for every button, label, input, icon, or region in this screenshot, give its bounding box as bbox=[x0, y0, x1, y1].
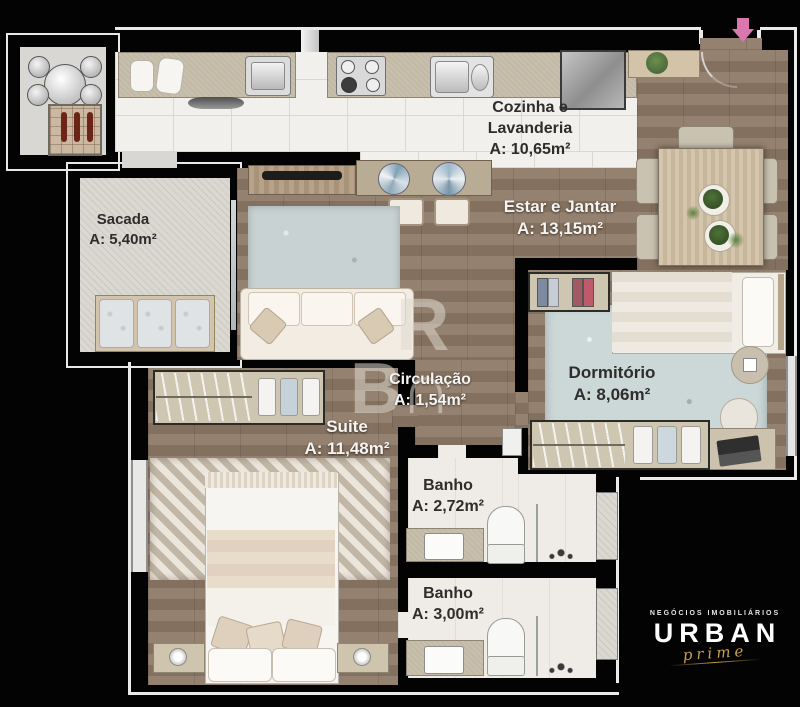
banho2-toilet-tank bbox=[487, 656, 525, 676]
room-name: Sacada bbox=[62, 210, 184, 230]
folded-clothes bbox=[280, 378, 298, 416]
laundry-tank-basin-small bbox=[471, 64, 489, 91]
banho1-toilet-tank bbox=[487, 544, 525, 564]
room-name: Lavanderia bbox=[450, 119, 610, 140]
banho1-vent-window bbox=[596, 492, 618, 560]
room-area: A: 1,54m² bbox=[350, 391, 510, 412]
wardrobe-clothes bbox=[583, 278, 594, 307]
label-banho1: Banho A: 2,72m² bbox=[398, 476, 498, 518]
nightstand-lamp bbox=[353, 648, 371, 666]
bed-pillow-large bbox=[208, 648, 272, 682]
living-rug bbox=[248, 206, 400, 296]
room-area: A: 2,72m² bbox=[398, 497, 498, 518]
label-circulacao: Circulação A: 1,54m² bbox=[350, 370, 510, 412]
outline-top-left bbox=[115, 27, 701, 30]
folded-clothes bbox=[302, 378, 320, 416]
banho1-shower-fixture bbox=[548, 548, 574, 560]
ottoman bbox=[434, 198, 470, 226]
side-lamp bbox=[743, 358, 757, 372]
table-plant bbox=[703, 189, 723, 209]
suite-bed-blanket bbox=[207, 530, 335, 588]
label-suite: Suite A: 11,48m² bbox=[286, 416, 408, 460]
outline-dorm-bottom bbox=[640, 477, 797, 480]
banho2-shower-fixture bbox=[548, 662, 574, 674]
room-name: Banho bbox=[398, 584, 498, 605]
banho2-shower-glass bbox=[536, 616, 538, 676]
table-sprig bbox=[728, 232, 744, 248]
stool bbox=[80, 56, 102, 78]
grill-skewer bbox=[61, 112, 67, 142]
stool bbox=[27, 84, 49, 106]
bench-cushion bbox=[99, 299, 134, 348]
logo-tagline: NEGÓCIOS IMOBILIÁRIOS bbox=[648, 610, 782, 617]
wardrobe-clothes bbox=[572, 278, 583, 307]
stool bbox=[28, 56, 50, 78]
banho2-sink bbox=[424, 646, 464, 674]
banho1-door-opening bbox=[438, 445, 466, 458]
dorm-headboard bbox=[778, 274, 784, 350]
label-banho2: Banho A: 3,00m² bbox=[398, 584, 498, 626]
grill-skewer bbox=[74, 112, 80, 142]
burner bbox=[365, 60, 379, 74]
folded-clothes bbox=[633, 426, 653, 464]
wardrobe-clothes bbox=[548, 278, 559, 307]
room-name: Cozinha e bbox=[450, 98, 610, 119]
stool bbox=[80, 84, 102, 106]
range-hood bbox=[188, 97, 244, 109]
room-area: A: 5,40m² bbox=[62, 230, 184, 250]
bed-pillow-large bbox=[272, 648, 336, 682]
room-area: A: 13,15m² bbox=[478, 218, 642, 240]
dorm-window bbox=[786, 356, 797, 456]
laundry-tank-basin bbox=[435, 61, 469, 93]
banho1-shower-glass bbox=[536, 504, 538, 562]
sacada-glass-door bbox=[231, 200, 236, 330]
outline-bottom bbox=[128, 692, 619, 695]
wardrobe-rod bbox=[156, 396, 252, 398]
room-area: A: 8,06m² bbox=[532, 384, 692, 406]
table-plant bbox=[709, 225, 729, 245]
room-name: Dormitório bbox=[532, 362, 692, 384]
room-name: Suite bbox=[286, 416, 408, 438]
suite-window bbox=[131, 460, 148, 572]
wardrobe-clothes bbox=[537, 278, 548, 307]
label-sacada: Sacada A: 5,40m² bbox=[62, 210, 184, 249]
burner bbox=[341, 60, 355, 74]
banho2-vent-window bbox=[596, 588, 618, 660]
sofa-cushion bbox=[301, 292, 353, 326]
dorm-door-opening bbox=[515, 392, 528, 428]
bread-item bbox=[130, 60, 154, 92]
room-area: A: 3,00m² bbox=[398, 605, 498, 626]
label-estar: Estar e Jantar A: 13,15m² bbox=[478, 196, 642, 240]
kitchen-window bbox=[301, 30, 319, 52]
kitchen-sink-basin bbox=[251, 62, 285, 90]
room-name: Banho bbox=[398, 476, 498, 497]
bench-cushion bbox=[175, 299, 210, 348]
room-area: A: 11,48m² bbox=[286, 438, 408, 460]
table-sprig bbox=[686, 206, 700, 220]
banho1-shelf bbox=[502, 428, 522, 456]
dorm-bed-blanket bbox=[612, 272, 732, 352]
suite-bed-fur-trim bbox=[205, 472, 337, 488]
burner bbox=[366, 78, 380, 92]
plant bbox=[646, 52, 668, 74]
wardrobe-rod bbox=[533, 444, 625, 446]
room-area: A: 10,65m² bbox=[450, 140, 610, 161]
urban-prime-logo: NEGÓCIOS IMOBILIÁRIOS URBAN prime bbox=[648, 610, 782, 663]
tv-stand bbox=[248, 165, 356, 195]
burner bbox=[341, 77, 357, 93]
bread-item bbox=[155, 56, 186, 95]
dorm-bed-pillow bbox=[742, 277, 774, 347]
folded-clothes bbox=[681, 426, 701, 464]
sideboard bbox=[356, 160, 492, 196]
room-name: Circulação bbox=[350, 370, 510, 391]
grill-skewer bbox=[87, 112, 93, 142]
grill-passage-floor bbox=[122, 152, 177, 168]
tv bbox=[262, 171, 342, 180]
entrance-arrow-head bbox=[732, 29, 754, 42]
room-name: Estar e Jantar bbox=[478, 196, 642, 218]
floor-plan: R B∩ Sacada A: 5,40m² Cozinha e Lavander… bbox=[0, 0, 800, 707]
banho1-sink bbox=[424, 533, 464, 560]
decor-bowl bbox=[432, 162, 466, 196]
label-dormitorio: Dormitório A: 8,06m² bbox=[532, 362, 692, 406]
bench-cushion bbox=[137, 299, 172, 348]
label-cozinha: Cozinha e Lavanderia A: 10,65m² bbox=[450, 98, 610, 160]
outline-top-right bbox=[760, 27, 797, 30]
folded-clothes bbox=[657, 426, 677, 464]
nightstand-lamp bbox=[169, 648, 187, 666]
folded-clothes bbox=[258, 378, 276, 416]
